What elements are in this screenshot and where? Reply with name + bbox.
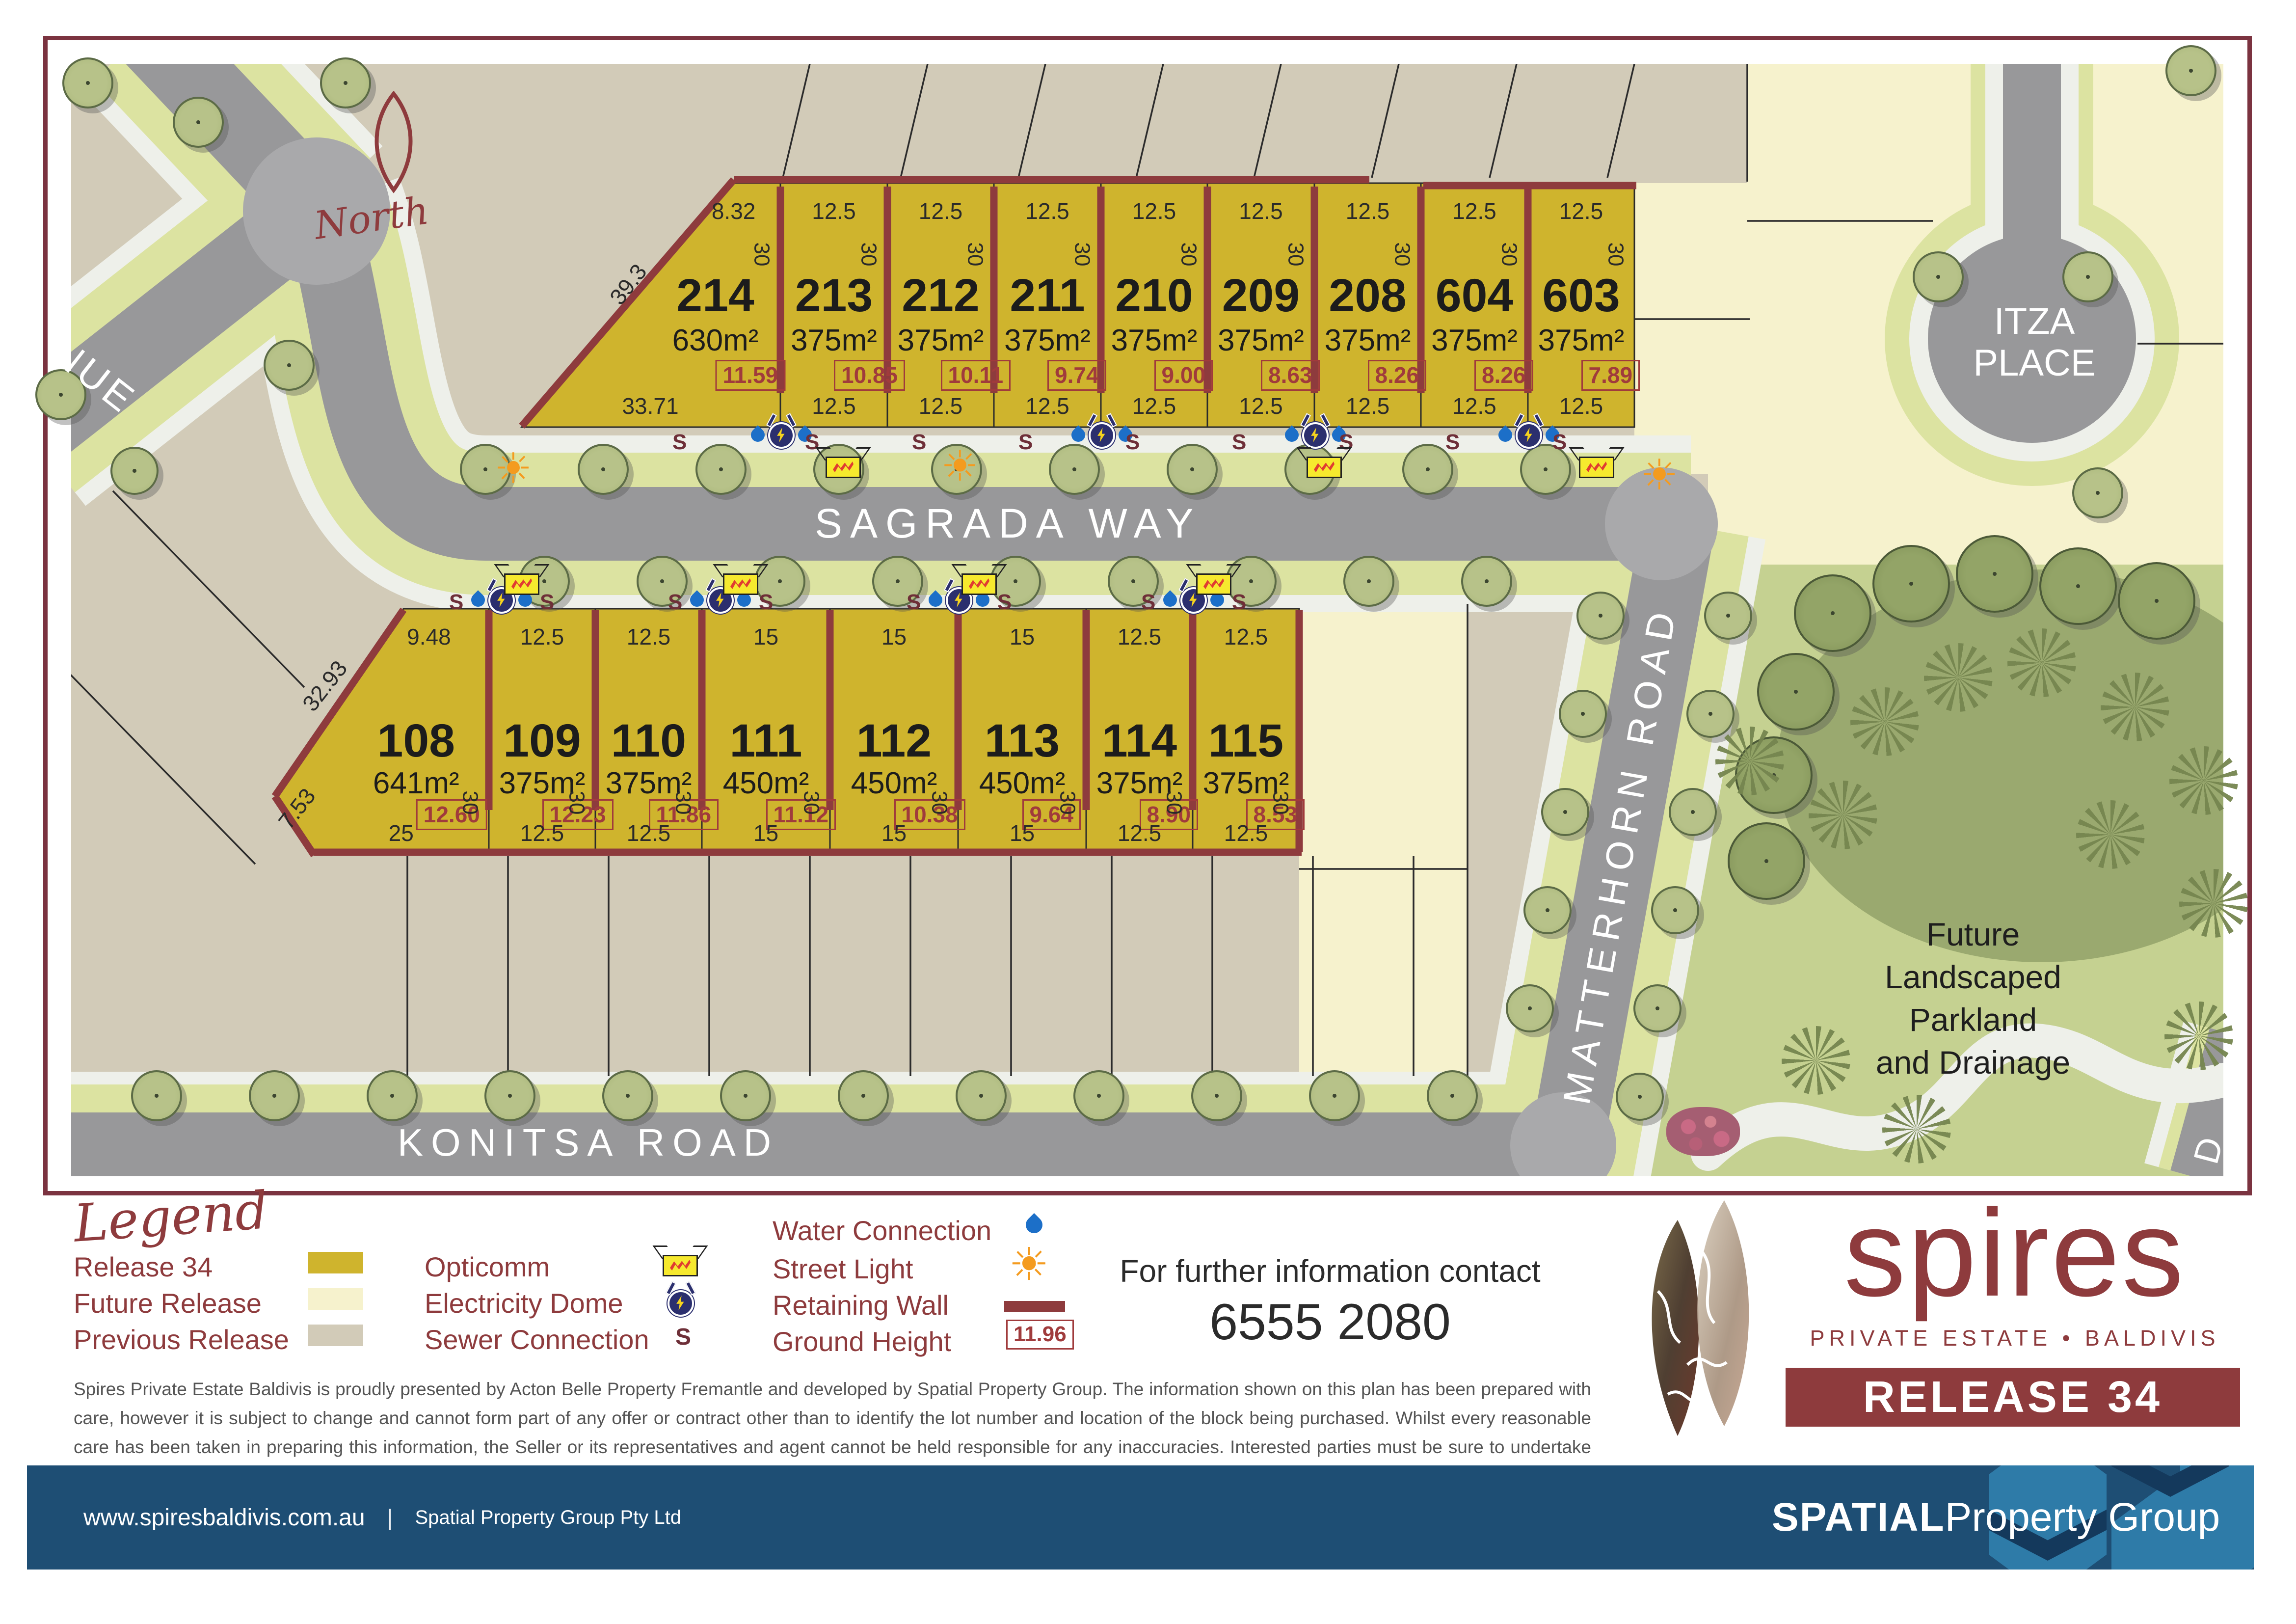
- parkland-tree-icon: [1728, 822, 1805, 900]
- lot-208: 12.5208375m²8.2612.530: [1314, 183, 1421, 427]
- lot-115-depth30: 30: [1268, 791, 1293, 815]
- tree-icon: [1576, 592, 1625, 640]
- tree-icon: [320, 57, 371, 108]
- opticomm-icon: [826, 457, 861, 478]
- sewer-icon: S: [912, 430, 926, 455]
- sewer-icon: S: [759, 590, 773, 615]
- footer-website[interactable]: www.spiresbaldivis.com.au: [83, 1504, 365, 1531]
- road-label-sagrada-way: SAGRADA WAY: [815, 500, 1201, 547]
- parkland-tree-icon: [1956, 535, 2033, 613]
- tree-icon: [695, 444, 747, 495]
- lot-108-dim: 32.93: [296, 655, 352, 716]
- opticomm-icon: [663, 1255, 698, 1276]
- lot-212-dim: 12.5: [887, 198, 994, 224]
- parkland-label: FutureLandscaped Parklandand Drainage: [1777, 913, 2169, 1084]
- spires-tagline: PRIVATE ESTATE • BALDIVIS: [1787, 1326, 2243, 1351]
- lot-115-ground-height: 8.53: [1246, 799, 1305, 830]
- lot-603-dim: 12.5: [1528, 198, 1634, 224]
- lot-109-dim: 12.5: [489, 623, 595, 650]
- water-drop-icon: [1282, 425, 1302, 445]
- lot-109-area: 375m²: [489, 766, 595, 801]
- legend-water-label: Water Connection: [773, 1215, 991, 1246]
- tree-icon: [1686, 690, 1735, 738]
- tree-icon: [602, 1070, 653, 1121]
- water-drop-icon: [748, 425, 768, 445]
- lot-212-dim: 12.5: [887, 393, 994, 419]
- lot-108-dim: 7.53: [273, 783, 321, 834]
- legend-opticomm-label: Opticomm: [425, 1251, 550, 1283]
- legend-streetlight-label: Street Light: [773, 1253, 913, 1285]
- lot-114-ground-height: 8.90: [1140, 799, 1199, 830]
- street-light-icon: ☀: [494, 448, 532, 490]
- lot-112-dim: 15: [830, 820, 958, 846]
- release-badge: RELEASE 34: [1786, 1368, 2240, 1427]
- lot-108-depth30: 30: [458, 791, 482, 815]
- retaining-wall-icon: [1004, 1301, 1065, 1312]
- lot-604-num: 604: [1421, 269, 1528, 323]
- lot-112-dim: 15: [830, 623, 958, 650]
- tree-icon: [1343, 556, 1394, 607]
- lot-114-dim: 12.5: [1086, 623, 1193, 650]
- sewer-icon: S: [907, 590, 921, 615]
- water-drop-icon: [1068, 425, 1088, 445]
- lot-214-num: 214: [586, 269, 846, 323]
- sewer-icon: S: [805, 430, 819, 455]
- opticomm-icon: [504, 573, 539, 595]
- tree-icon: [720, 1070, 771, 1121]
- shrub-icon: [2164, 1001, 2233, 1070]
- lot-109-depth30: 30: [564, 791, 589, 815]
- opticomm-icon: [1307, 457, 1342, 478]
- contact-block: For further information contact 6555 208…: [1119, 1253, 1541, 1352]
- estate-plan-poster: 8.32214630m²11.5933.713039.312.5213375m²…: [0, 0, 2296, 1624]
- lot-604-dim: 12.5: [1421, 393, 1528, 419]
- tree-icon: [1913, 251, 1964, 302]
- lot-113: 15113450m²9.641530: [958, 609, 1086, 854]
- tree-icon: [2165, 45, 2216, 96]
- legend-electricity-label: Electricity Dome: [425, 1287, 623, 1319]
- legend-future-label: Future Release: [74, 1287, 262, 1319]
- spires-logo-leaves: [1629, 1198, 1781, 1438]
- lot-113-dim: 15: [958, 623, 1086, 650]
- parkland-tree-icon: [2039, 547, 2117, 625]
- lot-108-num: 108: [309, 714, 523, 768]
- parkland-tree-icon: [1757, 653, 1835, 731]
- lot-211: 12.5211375m²9.7412.530: [994, 183, 1101, 427]
- electricity-dome-icon: [1516, 422, 1542, 449]
- lot-109: 12.5109375m²12.2312.530: [489, 609, 595, 854]
- flower-bed: [1666, 1107, 1740, 1156]
- lot-213: 12.5213375m²10.8512.530: [780, 183, 887, 427]
- lot-209-dim: 12.5: [1207, 393, 1314, 419]
- lot-603: 12.5603375m²7.8912.530: [1528, 183, 1634, 427]
- lot-604-area: 375m²: [1421, 323, 1528, 358]
- lot-110-area: 375m²: [595, 766, 702, 801]
- lot-603-depth30: 30: [1603, 243, 1628, 267]
- sewer-icon: S: [1141, 590, 1155, 615]
- lot-114-area: 375m²: [1086, 766, 1193, 801]
- lot-112-depth30: 30: [927, 791, 952, 815]
- lot-210: 12.5210375m²9.0012.530: [1101, 183, 1207, 427]
- lot-110-num: 110: [595, 714, 702, 768]
- shrub-icon: [2179, 869, 2248, 938]
- lot-111-dim: 15: [702, 623, 830, 650]
- water-drop-icon: [1022, 1213, 1046, 1237]
- tree-icon: [2062, 251, 2113, 302]
- lot-208-dim: 12.5: [1314, 393, 1421, 419]
- lot-115: 12.5115375m²8.5312.530: [1193, 609, 1299, 854]
- sewer-icon: S: [672, 430, 687, 455]
- water-drop-icon: [926, 590, 945, 610]
- tree-icon: [838, 1070, 889, 1121]
- road-label-itza-place: ITZAPLACE: [1941, 300, 2128, 384]
- lot-208-num: 208: [1314, 269, 1421, 323]
- lot-110-dim: 12.5: [595, 623, 702, 650]
- lot-210-area: 375m²: [1101, 323, 1207, 358]
- lot-209: 12.5209375m²8.6312.530: [1207, 183, 1314, 427]
- tree-icon: [1073, 1070, 1124, 1121]
- lot-108-ground-height: 12.60: [416, 799, 487, 830]
- legend-release34-label: Release 34: [74, 1251, 213, 1283]
- contact-line: For further information contact: [1119, 1253, 1541, 1289]
- lot-113-num: 113: [958, 714, 1086, 768]
- electricity-dome-icon: [667, 1290, 694, 1317]
- sewer-icon: S: [449, 590, 463, 615]
- lot-110-dim: 12.5: [595, 820, 702, 846]
- spires-wordmark: spires: [1787, 1182, 2243, 1324]
- lot-214-dim: 39.3: [604, 259, 652, 310]
- lot-213-depth30: 30: [856, 243, 881, 267]
- tree-icon: [1191, 1070, 1242, 1121]
- lot-214-area: 630m²: [586, 323, 846, 358]
- lot-115-num: 115: [1193, 714, 1299, 768]
- lot-208-area: 375m²: [1314, 323, 1421, 358]
- lot-114: 12.5114375m²8.9012.530: [1086, 609, 1193, 854]
- tree-icon: [1167, 444, 1218, 495]
- water-drop-icon: [1495, 425, 1515, 445]
- lot-114-depth30: 30: [1162, 791, 1186, 815]
- shrub-icon: [1850, 687, 1919, 756]
- contact-phone[interactable]: 6555 2080: [1119, 1293, 1541, 1352]
- lot-210-ground-height: 9.00: [1154, 360, 1213, 391]
- tree-icon: [264, 340, 315, 391]
- spatial-logo: SPATIAL Property Group: [1772, 1465, 2220, 1570]
- tree-icon: [1541, 788, 1589, 836]
- electricity-dome-icon: [1302, 422, 1329, 449]
- footer-company: Spatial Property Group Pty Ltd: [415, 1507, 682, 1529]
- lot-208-depth30: 30: [1390, 243, 1415, 267]
- legend-release34-swatch: [308, 1252, 363, 1273]
- sewer-icon: S: [997, 590, 1012, 615]
- lot-210-num: 210: [1101, 269, 1207, 323]
- sewer-icon: S: [675, 1324, 691, 1351]
- lot-112-area: 450m²: [830, 766, 958, 801]
- lot-603-dim: 12.5: [1528, 393, 1634, 419]
- legend-retainingwall-label: Retaining Wall: [773, 1289, 949, 1321]
- lot-108-area: 641m²: [309, 766, 523, 801]
- lot-113-dim: 15: [958, 820, 1086, 846]
- lot-212-depth30: 30: [963, 243, 988, 267]
- shrub-icon: [2169, 746, 2238, 815]
- lot-213-num: 213: [780, 269, 887, 323]
- legend-future-swatch: [308, 1288, 363, 1310]
- lot-111-dim: 15: [702, 820, 830, 846]
- lot-108: 9.48108641m²12.60253032.937.53: [275, 609, 489, 854]
- shrub-icon: [2076, 800, 2145, 869]
- tree-icon: [578, 444, 629, 495]
- water-drop-icon: [687, 590, 707, 610]
- tree-icon: [1704, 592, 1752, 640]
- shrub-icon: [2007, 628, 2076, 697]
- lot-109-ground-height: 12.23: [542, 799, 614, 830]
- tree-icon: [1049, 444, 1100, 495]
- parkland-tree-icon: [2118, 562, 2195, 640]
- tree-icon: [110, 447, 159, 495]
- lot-209-area: 375m²: [1207, 323, 1314, 358]
- lot-211-area: 375m²: [994, 323, 1101, 358]
- water-drop-icon: [1160, 590, 1180, 610]
- lot-112-ground-height: 10.38: [894, 799, 965, 830]
- lot-208-dim: 12.5: [1314, 198, 1421, 224]
- opticomm-icon: [1579, 457, 1614, 478]
- street-light-icon: ☀: [941, 445, 979, 487]
- tree-icon: [1633, 984, 1682, 1032]
- tree-icon: [1559, 690, 1607, 738]
- lot-210-dim: 12.5: [1101, 393, 1207, 419]
- lot-110: 12.5110375m²11.8612.530: [595, 609, 702, 854]
- sewer-icon: S: [1125, 430, 1140, 455]
- lot-111: 15111450m²11.121530: [702, 609, 830, 854]
- street-light-icon: ☀: [1009, 1242, 1049, 1287]
- lot-211-dim: 12.5: [994, 198, 1101, 224]
- lot-604-dim: 12.5: [1421, 198, 1528, 224]
- lot-111-area: 450m²: [702, 766, 830, 801]
- opticomm-icon: [723, 573, 758, 595]
- lot-112: 15112450m²10.381530: [830, 609, 958, 854]
- electricity-dome-icon: [1089, 422, 1115, 449]
- tree-icon: [1651, 886, 1699, 934]
- tree-icon: [131, 1070, 182, 1121]
- lot-108-dim: 9.48: [322, 623, 536, 650]
- shrub-icon: [1809, 781, 1877, 849]
- lot-211-num: 211: [994, 269, 1101, 323]
- lot-604: 12.5604375m²8.2612.530: [1421, 183, 1528, 427]
- tree-icon: [2072, 467, 2123, 518]
- shrub-icon: [2101, 673, 2169, 741]
- sewer-icon: S: [668, 590, 682, 615]
- sewer-icon: S: [1018, 430, 1033, 455]
- lot-209-depth30: 30: [1283, 243, 1308, 267]
- tree-icon: [249, 1070, 300, 1121]
- legend-title: Legend: [72, 1180, 270, 1253]
- lot-112-num: 112: [830, 714, 958, 768]
- lot-603-num: 603: [1528, 269, 1634, 323]
- lot-212-ground-height: 10.11: [941, 360, 1011, 391]
- tree-icon: [1616, 1073, 1664, 1121]
- opticomm-icon: [961, 573, 997, 595]
- lot-114-dim: 12.5: [1086, 820, 1193, 846]
- tree-icon: [1427, 1070, 1478, 1121]
- ground-height-icon: 11.96: [1006, 1320, 1074, 1350]
- lot-115-dim: 12.5: [1193, 820, 1299, 846]
- sewer-icon: S: [1445, 430, 1460, 455]
- lot-214-dim: 8.32: [604, 198, 864, 224]
- shrub-icon: [1924, 643, 1993, 712]
- lot-113-area: 450m²: [958, 766, 1086, 801]
- lot-115-dim: 12.5: [1193, 623, 1299, 650]
- shrub-icon: [1715, 727, 1784, 795]
- tree-icon: [1523, 886, 1572, 934]
- lot-214-depth30: 30: [749, 243, 774, 267]
- lot-603-area: 375m²: [1528, 323, 1634, 358]
- lot-213-area: 375m²: [780, 323, 887, 358]
- legend-previous-swatch: [308, 1325, 363, 1346]
- lot-113-ground-height: 9.64: [1022, 799, 1081, 830]
- footer-separator: |: [387, 1504, 393, 1531]
- lot-212: 12.5212375m²10.1112.530: [887, 183, 994, 427]
- lot-109-dim: 12.5: [489, 820, 595, 846]
- lot-111-num: 111: [702, 714, 830, 768]
- lot-211-ground-height: 9.74: [1047, 360, 1106, 391]
- tree-icon: [1506, 984, 1554, 1032]
- lot-111-depth30: 30: [799, 791, 824, 815]
- tree-icon: [367, 1070, 418, 1121]
- lot-114-num: 114: [1086, 714, 1193, 768]
- lot-214-dim: 33.71: [520, 393, 780, 419]
- lot-212-num: 212: [887, 269, 994, 323]
- tree-icon: [62, 57, 113, 108]
- lot-109-num: 109: [489, 714, 595, 768]
- lot-213-dim: 12.5: [780, 198, 887, 224]
- lot-110-ground-height: 11.86: [649, 799, 719, 830]
- lot-212-area: 375m²: [887, 323, 994, 358]
- opticomm-icon: [1196, 573, 1231, 595]
- electricity-dome-icon: [768, 422, 795, 449]
- footer-bar: www.spiresbaldivis.com.au | Spatial Prop…: [27, 1465, 2254, 1570]
- legend-sewer-label: Sewer Connection: [425, 1324, 649, 1355]
- lot-604-depth30: 30: [1497, 243, 1522, 267]
- release-badge-label: RELEASE 34: [1786, 1368, 2240, 1427]
- lot-603-ground-height: 7.89: [1581, 360, 1640, 391]
- lot-111-ground-height: 11.12: [766, 799, 836, 830]
- lot-604-ground-height: 8.26: [1474, 360, 1533, 391]
- lot-214-ground-height: 11.59: [716, 360, 786, 391]
- lot-211-depth30: 30: [1070, 243, 1095, 267]
- lot-209-ground-height: 8.63: [1261, 360, 1320, 391]
- sewer-icon: S: [540, 590, 554, 615]
- parkland-tree-icon: [1872, 545, 1950, 623]
- lot-209-dim: 12.5: [1207, 198, 1314, 224]
- lot-211-dim: 12.5: [994, 393, 1101, 419]
- tree-icon: [1309, 1070, 1360, 1121]
- lot-113-depth30: 30: [1055, 791, 1080, 815]
- lot-214: 8.32214630m²11.5933.713039.3: [520, 183, 780, 427]
- sewer-icon: S: [1232, 590, 1246, 615]
- lot-210-dim: 12.5: [1101, 198, 1207, 224]
- lot-208-ground-height: 8.26: [1368, 360, 1427, 391]
- road-label-konitsa-road: KONITSA ROAD: [398, 1120, 779, 1165]
- shrub-icon: [1882, 1095, 1951, 1164]
- lot-213-dim: 12.5: [780, 393, 887, 419]
- water-drop-icon: [468, 590, 488, 610]
- lot-213-ground-height: 10.85: [834, 360, 905, 391]
- tree-icon: [1669, 788, 1717, 836]
- legend-previous-label: Previous Release: [74, 1324, 289, 1355]
- lot-210-depth30: 30: [1176, 243, 1201, 267]
- tree-icon: [1461, 556, 1512, 607]
- parkland-tree-icon: [1794, 574, 1871, 652]
- tree-icon: [173, 97, 224, 148]
- tree-icon: [956, 1070, 1007, 1121]
- sewer-icon: S: [1552, 430, 1567, 455]
- lot-115-area: 375m²: [1193, 766, 1299, 801]
- legend-groundheight-label: Ground Height: [773, 1326, 951, 1357]
- lot-110-depth30: 30: [671, 791, 695, 815]
- north-arrow-icon: [364, 91, 423, 194]
- tree-icon: [484, 1070, 535, 1121]
- lot-209-num: 209: [1207, 269, 1314, 323]
- sewer-icon: S: [1232, 430, 1246, 455]
- lot-108-dim: 25: [294, 820, 508, 846]
